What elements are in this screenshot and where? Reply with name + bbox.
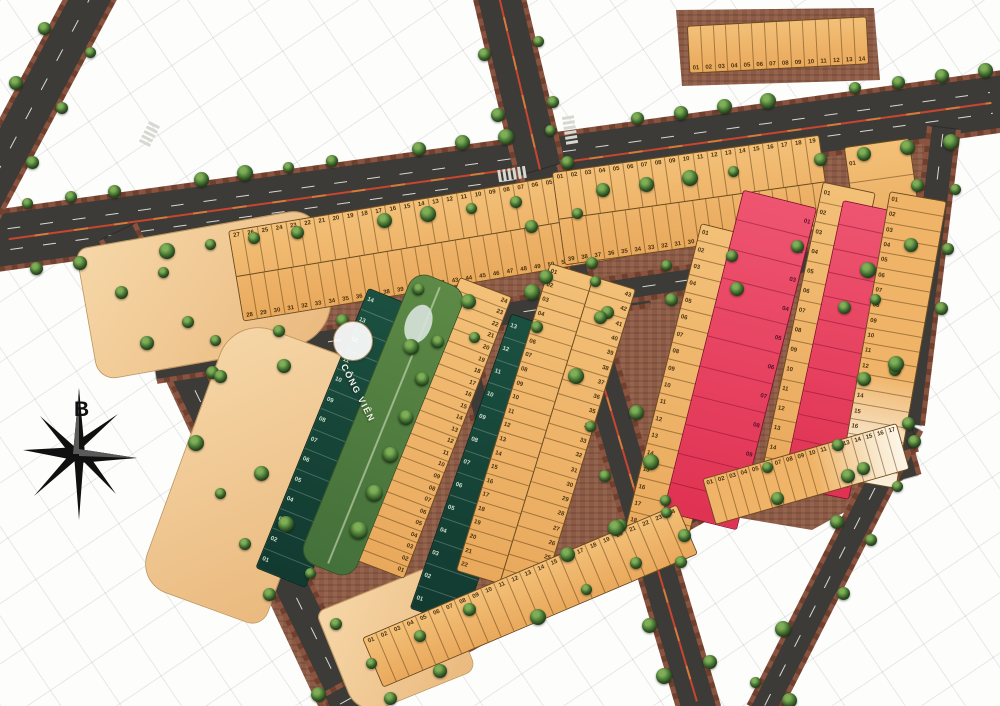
lot-number: 16 [851,423,859,430]
lot-number: 21 [464,547,472,555]
lot-number: 03 [393,625,402,633]
tree-icon [594,311,607,324]
lot-number: 21 [318,217,326,224]
lot-number: 33 [579,437,587,445]
lot-number: 09 [870,317,878,324]
lot-number: 23 [495,309,503,317]
lot-number: 16 [464,391,472,399]
lot-number: 19 [346,212,354,219]
lot-number: 34 [328,298,336,305]
lot-number: 12 [446,438,454,446]
lot-number: 09 [478,414,486,422]
lot-number: 16 [767,144,774,151]
lot-number: 07 [310,436,318,444]
lot-number: 05 [612,165,619,172]
lot-number: 08 [672,348,680,355]
tree-icon [159,243,175,259]
lot-number: 14 [537,564,546,572]
lot-number: 14 [858,56,865,62]
lot-number: 30 [687,239,694,246]
lot-number: 32 [574,452,582,460]
lot-number: 10 [867,332,875,339]
lot-number: 04 [883,242,891,249]
lot-number: 17 [888,426,896,434]
tree-icon [892,481,903,492]
lot-number: 12 [833,57,840,63]
lot-number: 31 [570,467,578,475]
lot-number: 15 [865,433,873,441]
lot-number: 08 [654,159,661,166]
lot-number: 04 [410,531,418,539]
lot-number: 06 [455,482,463,490]
lot-number: 12 [511,575,520,583]
lot-number: 09 [797,452,805,460]
lot-number: 10 [437,461,445,469]
lot-number: 03 [405,543,413,551]
lot-number: 07 [769,61,776,67]
lot-number: 11 [498,581,506,589]
lot-number: 09 [745,452,753,459]
lot-number: 18 [473,367,481,375]
tree-icon [263,588,276,601]
lot-number: 03 [584,169,591,176]
lot-number: 22 [460,561,468,569]
lot-number: 24 [275,224,283,231]
lot-number: 06 [531,182,539,189]
lot-number: 17 [634,500,642,507]
lot-number: 18 [795,140,802,147]
tree-icon [660,495,671,506]
tree-icon [524,284,540,300]
lot-number: 07 [524,352,532,360]
lot-number: 04 [537,310,545,318]
tree-icon [413,370,431,388]
tree-icon [904,238,918,252]
tree-icon [590,276,601,287]
lot-number: 01 [416,595,424,603]
tree-icon [530,609,546,625]
tree-icon [547,96,559,108]
lot-number: 31 [287,305,295,312]
lot-number: 07 [517,184,525,191]
lot-number: 15 [854,408,862,415]
tree-icon [377,213,392,228]
lot-number: 17 [781,142,788,149]
lot-number: 02 [697,247,705,254]
lot-number: 12 [862,363,870,370]
lot-number: 06 [756,61,763,67]
tree-icon [326,155,338,167]
lot-number: 01 [556,173,563,180]
tree-icon [857,372,871,386]
lot-number: 14 [856,393,864,400]
lot-number: 04 [740,469,748,477]
lot-number: 02 [380,630,389,638]
lot-number: 06 [802,288,810,295]
lot-number: 08 [470,436,478,444]
lot-number: 36 [592,394,600,402]
lot-number: 03 [729,472,737,480]
lot-number: 12 [711,152,718,159]
tree-icon [639,177,654,192]
tree-icon [908,435,921,448]
lot-number: 30 [273,307,281,314]
lot-number: 09 [326,396,334,404]
lot-number: 29 [561,496,569,504]
tree-icon [561,156,574,169]
tree-icon [717,99,732,114]
lot-number: 01 [367,636,376,644]
lot-number: 47 [506,268,514,275]
tree-icon [665,293,678,306]
lot-number: 09 [790,347,798,354]
lot-number: 07 [423,496,431,504]
lot-number: 48 [520,266,528,273]
tree-icon [661,507,672,518]
lot-number: 21 [486,332,494,340]
lot-number: 02 [570,171,577,178]
master-plan-map: B 27262524232221201918171615141312111009… [0,0,1000,706]
lot-number: 08 [318,416,326,424]
lot-number: 14 [739,148,746,155]
tree-icon [140,336,154,350]
lot-number: 13 [846,57,853,63]
lot-number: 11 [697,154,704,161]
lot-number: 09 [795,59,802,65]
lot-number: 43 [624,291,632,299]
lot-number: 07 [640,161,647,168]
lot-number: 35 [621,248,628,255]
lot-number: 09 [667,365,675,372]
lot-number: 10 [663,382,671,389]
tree-icon [841,469,855,483]
lot-number: 01 [706,478,714,486]
tree-icon [935,302,948,315]
lot-number: 03 [718,63,725,69]
lot-number: 02 [423,572,431,580]
tree-icon [596,183,610,197]
lot-number: 05 [774,335,782,342]
lot-number: 13 [524,569,533,577]
tree-icon [30,262,43,275]
lot-number: 02 [401,555,409,563]
lot-number: 41 [615,321,623,329]
lot-number: 09 [472,592,481,600]
lot-number: 04 [598,167,605,174]
lot-number: 07 [798,307,806,314]
lot-number: 19 [809,138,816,145]
tree-icon [237,165,253,181]
lot-number: 07 [445,603,454,611]
tree-icon [943,134,959,150]
lot-number: 04 [285,496,293,504]
lot-number: 45 [479,272,487,279]
lot-number: 36 [356,293,364,300]
lot-number: 07 [774,459,782,467]
tree-icon [384,692,397,705]
tree-icon [703,655,717,669]
tree-icon [205,239,216,250]
lot-number: 11 [820,446,828,454]
lot-number: 31 [674,240,681,247]
lot-number: 32 [301,302,309,309]
tree-icon [865,534,877,546]
lot-number: 12 [501,346,509,354]
lot-number: 15 [459,403,467,411]
tree-icon [675,556,687,568]
lot-number: 04 [406,619,415,627]
lot-number: 09 [668,157,675,164]
lot-number: 11 [507,408,515,416]
lot-number: 13 [450,426,458,434]
lot-number: 27 [233,231,241,238]
lot-number: 05 [744,62,751,68]
lot-number: 04 [781,306,789,313]
lot-number: 28 [246,311,254,318]
tree-icon [347,519,370,542]
tree-icon [273,325,285,337]
tree-icon [108,185,121,198]
tree-icon [291,226,304,239]
lot-number: 05 [751,465,759,473]
lot-number: 08 [503,186,511,193]
lot-number: 33 [314,300,322,307]
tree-icon [411,282,427,298]
tree-icon [608,520,624,536]
block-lk10: 0102030405060708091011121314 [688,17,868,72]
lot-number: 01 [396,567,404,575]
lot-number: 13 [432,198,440,205]
tree-icon [396,408,416,428]
lot-number: 11 [659,399,667,406]
lot-number: 11 [864,348,871,355]
lot-number: 04 [688,281,696,288]
crosswalk [139,121,160,147]
lot-number: 17 [576,547,585,555]
tree-icon [760,93,776,109]
lot-number: 02 [269,536,277,544]
tree-icon [860,262,876,278]
compass-north-label: B [74,398,89,422]
lot-number: 11 [494,369,502,377]
lot-number: 35 [588,408,596,416]
lot-number: 01 [849,161,856,168]
lot-number: 10 [786,366,794,373]
lot-number: 42 [619,306,627,314]
lot-number: 06 [432,608,441,616]
lot-number: 26 [548,540,556,548]
lot-number: 12 [446,196,454,203]
tree-icon [782,693,797,706]
lot-number: 10 [807,59,814,65]
tree-icon [158,267,169,278]
lot-number: 12 [777,406,785,413]
lot-number: 20 [482,344,490,352]
tree-icon [888,356,904,372]
tree-icon [539,270,553,284]
lot-number: 06 [680,314,688,321]
tree-icon [870,294,881,305]
lot-number: 05 [414,520,422,528]
tree-icon [838,301,851,314]
lot-number: 13 [773,425,781,432]
lot-number: 27 [552,525,560,533]
tree-icon [674,106,688,120]
lot-number: 13 [725,150,732,157]
lot-number: 18 [589,542,598,550]
lot-number: 10 [485,586,494,594]
tree-icon [461,294,476,309]
lot-number: 22 [491,321,499,329]
lot-number: 35 [342,295,350,302]
lot-number: 39 [568,255,575,262]
tree-icon [791,240,804,253]
lot-number: 13 [499,436,507,444]
tree-icon [210,335,221,346]
lot-number: 20 [469,534,477,542]
lot-number: 10 [486,391,494,399]
lot-number: 11 [460,193,467,200]
lot-number: 22 [641,519,650,527]
lot-number: 08 [752,422,760,429]
tree-icon [771,492,784,505]
lot-number: 02 [819,209,827,216]
lot-number: 13 [509,323,517,331]
tree-icon [188,435,204,451]
lot-number: 13 [650,433,658,440]
lot-number: 08 [794,327,802,334]
lot-number: 15 [753,146,760,153]
lot-number: 24 [500,297,508,305]
tree-icon [726,250,738,262]
lot-number: 19 [473,520,481,528]
lot-number: 16 [486,478,494,486]
lot-number: 05 [419,614,428,622]
tree-icon [26,156,39,169]
tree-icon [857,147,871,161]
tree-icon [478,48,491,61]
tree-icon [239,538,251,550]
lot-number: 02 [717,475,725,483]
lot-number: 08 [428,485,436,493]
tree-icon [950,184,961,195]
lot-number: 05 [447,504,455,512]
lot-number: 16 [876,430,884,438]
lot-number: 06 [767,364,775,371]
lot-number: 03 [693,264,701,271]
lot-number: 21 [628,525,637,533]
lot-number: 06 [419,508,427,516]
tree-icon [330,618,342,630]
lot-number: 06 [302,456,310,464]
tree-icon [682,170,698,186]
lot-number: 01 [891,197,899,204]
lot-number: 05 [880,257,888,264]
lot-number: 06 [528,338,536,346]
lot-number: 14 [455,414,463,422]
tree-icon [545,125,556,136]
lot-number: 10 [808,449,816,457]
lot-number: 14 [366,297,374,305]
lot-number: 32 [661,242,668,249]
lot-number: 46 [493,270,501,277]
lot-number: 06 [878,272,886,279]
tree-icon [278,516,294,532]
lot-number: 05 [684,298,692,305]
tree-icon [214,370,227,383]
tree-icon [429,333,446,350]
lot-number: 14 [854,436,862,444]
lot-number: 05 [293,476,301,484]
lot-number: 08 [786,456,794,464]
lot-number: 01 [261,556,269,564]
lot-number: 05 [545,179,553,186]
lot-number: 02 [888,212,896,219]
lot-number: 04 [811,249,819,256]
lot-number: 18 [477,506,485,514]
lot-number: 39 [397,286,405,293]
tree-icon [631,112,644,125]
lot-number: 15 [403,203,411,210]
tree-icon [215,488,226,499]
lot-number: 03 [431,549,439,557]
lot-number: 10 [474,191,482,198]
tree-icon [630,557,642,569]
tree-icon [942,243,954,255]
tree-icon [283,162,294,173]
lot-number: 40 [610,335,618,343]
lot-number: 36 [607,250,614,257]
tree-icon [572,208,583,219]
lot-number: 01 [803,218,811,225]
lot-number: 03 [815,229,823,236]
lot-number: 04 [731,63,738,69]
tree-icon [533,36,544,47]
lot-number: 20 [332,215,340,222]
lot-number: 19 [477,356,485,364]
lot-number: 15 [550,558,559,566]
lot-number: 06 [626,163,633,170]
trees-icon [333,321,373,361]
lot-number: 01 [692,65,699,71]
lot-number: 12 [655,416,663,423]
lot-number: 05 [806,268,814,275]
lot-number: 16 [638,483,646,490]
lot-number: 39 [606,350,614,358]
tree-icon [363,482,385,504]
lot-number: 09 [489,189,497,196]
tree-icon [194,172,209,187]
lot-number: 02 [705,64,712,70]
tree-icon [837,587,850,600]
lot-number: 49 [534,263,542,270]
lot-number: 25 [261,227,269,234]
lot-number: 10 [682,155,689,162]
lot-number: 18 [361,210,369,217]
lot-number: 38 [601,364,609,372]
lot-number: 10 [511,394,519,402]
lot-number: 15 [490,464,498,472]
tree-icon [463,603,476,616]
lot-number: 11 [820,58,827,64]
lot-number: 37 [597,379,605,387]
lot-number: 07 [676,331,684,338]
lot-number: 09 [432,473,440,481]
lot-number: 10 [334,376,342,384]
tree-icon [403,339,419,355]
tree-icon [469,332,480,343]
lot-number: 08 [782,60,789,66]
